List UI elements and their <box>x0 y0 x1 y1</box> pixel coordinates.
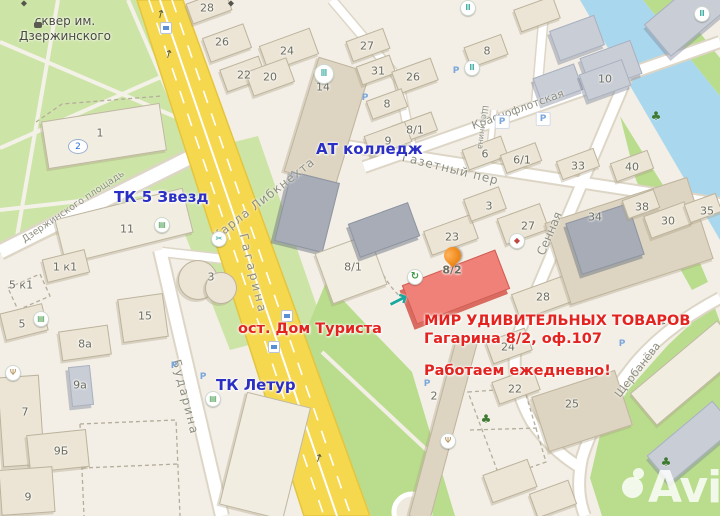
annotation-schedule: Работаем ежедневно! <box>424 363 611 379</box>
bld-label: 33 <box>571 160 585 173</box>
bld-label: 22 <box>508 383 522 396</box>
monument-icon: ◆ <box>228 0 234 8</box>
annotation-shop-name: МИР УДИВИТЕЛЬНЫХ ТОВАРОВ <box>424 313 690 329</box>
avito-logo-dot-small <box>633 468 644 479</box>
bld-label: 11 <box>120 223 134 236</box>
annotation-bus-stop: ост. Дом Туриста <box>238 321 382 337</box>
bank-icon: Ⅲ <box>464 60 480 76</box>
poi-tk-letur[interactable]: ТК Летур <box>216 376 296 394</box>
bld-label: 8/1 <box>406 124 424 137</box>
poi-tk-5-zvezd[interactable]: ТК 5 Звезд <box>114 188 209 206</box>
bus-stop-icon <box>160 22 172 34</box>
bld-label: 6/1 <box>513 154 531 167</box>
avito-watermark: Avito <box>648 462 720 513</box>
bld-label: 25 <box>565 398 579 411</box>
bld-label: 8а <box>78 338 92 351</box>
parking-icon: P <box>424 379 431 389</box>
bld-label: 38 <box>635 201 649 214</box>
bld-label: 10 <box>598 73 612 86</box>
bld-label: 28 <box>200 2 214 15</box>
monument-icon: ◆ <box>21 0 27 8</box>
parking-icon: P <box>536 112 551 126</box>
bld-label: 8 <box>484 45 491 58</box>
park-name: сквер им. Дзержинского <box>10 14 120 44</box>
bld-label: 31 <box>371 65 385 78</box>
bld-label: 28 <box>536 291 550 304</box>
bank-icon: Ⅲ <box>694 6 710 22</box>
bld-label: 27 <box>360 40 374 53</box>
bld-label: 26 <box>215 36 229 49</box>
bld-label: 8 <box>384 98 391 111</box>
parking-icon: P <box>619 339 626 349</box>
bus-stop-icon <box>268 341 280 353</box>
parking-icon: P <box>495 115 510 129</box>
poi-at-college[interactable]: АТ колледж <box>316 140 423 158</box>
park-feature-badge: 2 <box>68 139 88 154</box>
bld-label: 9Б <box>54 445 69 458</box>
bld-label: 23 <box>445 231 459 244</box>
hairdresser-icon: ✂ <box>211 231 227 247</box>
bld-label: 1 <box>97 127 104 140</box>
avito-logo-dot-large <box>622 477 643 498</box>
shopping-cart-icon: ▤ <box>33 311 49 327</box>
annotation-address: Гагарина 8/2, оф.107 <box>424 331 602 347</box>
bld-label: 40 <box>625 161 639 174</box>
map-canvas[interactable]: 1 11 1 к1 5 к1 5 3 15 8а 9а 7 9Б 9 28 26… <box>0 0 720 516</box>
bld-label: 15 <box>138 310 152 323</box>
parking-icon: P <box>200 372 207 382</box>
parking-icon: P <box>453 66 460 76</box>
bld-label: 34 <box>588 211 602 224</box>
parking-icon: P <box>362 93 369 103</box>
recycle-icon: ↻ <box>407 269 423 285</box>
shopping-cart-icon: ▤ <box>154 217 170 233</box>
bld-label: 5 к1 <box>9 279 33 292</box>
bld-label: 1 к1 <box>53 261 77 274</box>
bld-label: 22 <box>237 69 251 82</box>
bank-glyph: Ⅲ <box>321 69 328 79</box>
tree-icon: ♣ <box>481 412 492 426</box>
photo-icon <box>34 22 42 28</box>
bld-label: 30 <box>661 215 675 228</box>
bank-icon: Ⅲ <box>460 0 476 16</box>
bld-label: 27 <box>521 220 535 233</box>
bld-label: 24 <box>280 45 294 58</box>
bld-label: 9а <box>73 379 87 392</box>
restaurant-icon: Ψ <box>440 433 456 449</box>
bld-label: 26 <box>406 71 420 84</box>
bld-label: 35 <box>700 205 714 218</box>
bld-label: 3 <box>486 200 493 213</box>
tree-icon: ♣ <box>651 109 662 123</box>
bld-label: 3 <box>208 271 215 284</box>
bank-icon: Ⅲ <box>314 64 334 84</box>
parking-icon: P <box>171 361 178 371</box>
bld-label: 7 <box>22 406 29 419</box>
bld-label: 20 <box>263 71 277 84</box>
bld-label: 5 <box>19 318 26 331</box>
bld-label: 9 <box>25 491 32 504</box>
restaurant-icon: Ψ <box>5 365 21 381</box>
bld-label: 8/1 <box>344 261 362 274</box>
bld-label: 2 <box>431 390 438 403</box>
theater-icon: ◆ <box>509 233 525 249</box>
